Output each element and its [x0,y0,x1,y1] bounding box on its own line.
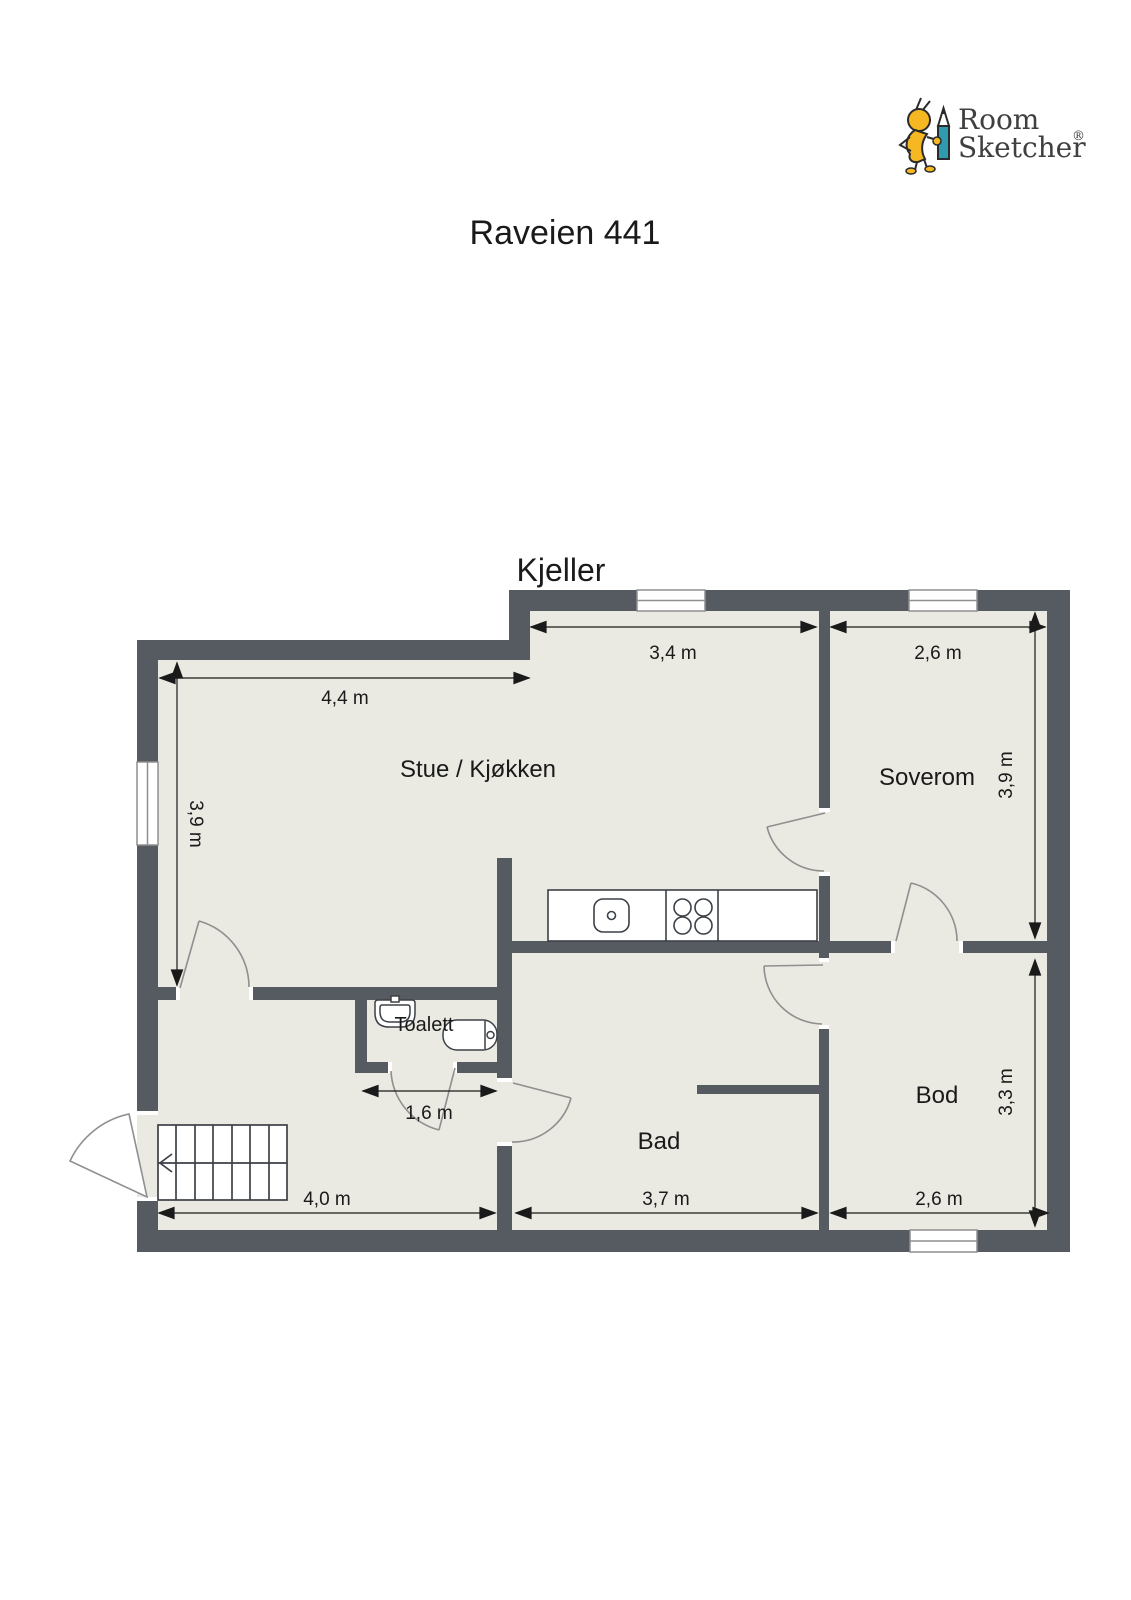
wall-hall-stue-right [249,987,500,1000]
wall-exterior-top-left [137,640,530,660]
logo-text-line2: Sketcher [958,131,1086,164]
room-label-soverom: Soverom [879,764,975,791]
wall-hall-bad-lower [497,1142,512,1230]
floorplan-canvas: Room Sketcher ® Raveien 441 Kjeller [0,0,1131,1600]
dim-label-bod-width: 2,6 m [915,1189,963,1210]
kitchen-sink-icon [594,899,629,932]
wall-stue-soverom-stub [819,876,830,941]
logo-registered-mark: ® [1072,129,1085,144]
figure-foot-right [925,166,935,172]
roomsketcher-logo: Room Sketcher ® [900,98,1086,174]
wall-toalett-bottom-right [457,1062,500,1073]
floorplan-page: Room Sketcher ® Raveien 441 Kjeller [0,0,1131,1600]
wall-toalett-bottom-left [355,1062,392,1073]
page-title: Raveien 441 [470,214,661,252]
wall-hall-bad-upper [497,858,512,1082]
dim-label-toalett-width: 1,6 m [405,1103,453,1124]
window-top-1 [637,590,705,611]
wall-stue-soverom [819,611,830,812]
wall-bad-niche-stub [697,1085,819,1094]
dim-label-hall-width: 4,0 m [303,1189,351,1210]
room-label-bad: Bad [638,1128,681,1155]
stairs [158,1125,287,1200]
room-label-toalett: Toalett [395,1014,454,1036]
roomsketcher-figure-icon [900,98,949,174]
kitchen-counter [548,890,817,941]
dim-label-bod-depth: 3,3 m [996,1068,1017,1116]
dim-label-bad-width: 3,7 m [642,1189,690,1210]
room-label-stue-kjokken: Stue / Kjøkken [400,756,556,783]
wall-soverom-bod [959,941,1047,953]
figure-head [908,109,930,131]
figure-foot-left [906,168,916,174]
window-left [137,762,158,845]
wall-exterior-right [1047,590,1070,1252]
wall-bad-bod [819,1025,829,1230]
dim-label-soverom-depth: 3,9 m [996,751,1017,799]
dim-label-stue-depth: 3,9 m [185,800,206,848]
window-top-2 [909,590,977,611]
wall-exterior-top-right [509,590,1070,611]
room-label-bod: Bod [916,1082,959,1109]
dim-label-stue-width: 4,4 m [321,688,369,709]
dim-label-kitchen-width: 3,4 m [649,643,697,664]
window-bottom [910,1230,977,1252]
dim-label-soverom-width: 2,6 m [914,643,962,664]
figure-hand [933,137,941,145]
faucet [391,996,399,1002]
wall-kitchen-south [500,941,895,953]
entrance-door [70,1114,147,1197]
floor-name-label: Kjeller [517,552,606,588]
figure-body [907,130,927,162]
